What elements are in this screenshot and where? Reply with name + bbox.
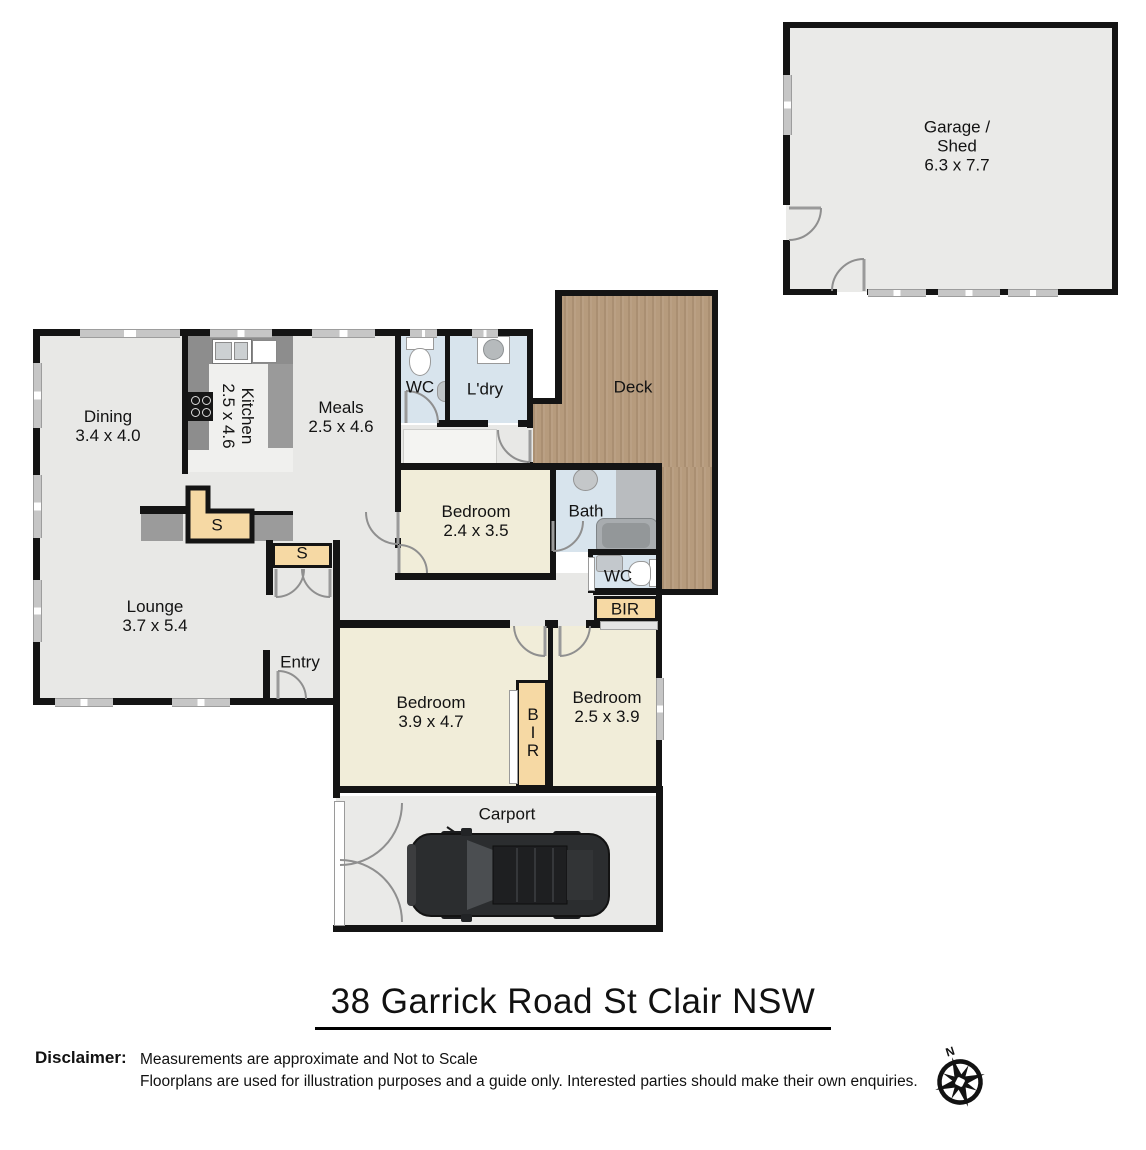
wall: [555, 290, 718, 296]
room-dims: 3.9 x 4.7: [397, 712, 466, 731]
room-label-meals: Meals 2.5 x 4.6: [308, 398, 373, 436]
room-name: Bath: [569, 502, 604, 521]
window: [172, 698, 230, 707]
room-label-laundry: L'dry: [467, 380, 503, 399]
room-name: Carport: [479, 805, 536, 824]
disclaimer-line2: Floorplans are used for illustration pur…: [140, 1073, 918, 1091]
floorplan-canvas: N Garage / Shed 6.3 x 7.7 Dining 3.4 x 4…: [0, 0, 1146, 1150]
room-label-garage: Garage / Shed 6.3 x 7.7: [924, 118, 990, 175]
wall: [395, 463, 662, 470]
room-label-entry: Entry: [280, 653, 320, 672]
wall: [712, 290, 718, 595]
window: [656, 678, 664, 740]
wall: [333, 925, 663, 932]
room-name: L'dry: [467, 380, 503, 399]
kitchen-sink-bowl: [215, 342, 232, 360]
stove-burner: [191, 396, 200, 405]
room-dims: 2.4 x 3.5: [442, 521, 511, 540]
wall: [783, 22, 1118, 28]
room-label-lounge: Lounge 3.7 x 5.4: [122, 597, 187, 635]
wall: [437, 420, 488, 427]
lounge-cabinet-right: [253, 511, 293, 541]
room-name: Lounge: [122, 597, 187, 616]
window: [55, 698, 113, 707]
room-name: S: [211, 516, 222, 535]
room-name: Bedroom: [442, 502, 511, 521]
laundry-tub-bowl: [483, 339, 504, 360]
room-label-kitchen: Kitchen 2.5 x 4.6: [219, 383, 257, 448]
kitchen-sink-bowl: [234, 342, 248, 360]
room-dims: 2.5 x 4.6: [308, 417, 373, 436]
bathtub-inner: [602, 523, 650, 548]
toilet-bowl-icon: [409, 348, 431, 376]
wall: [783, 22, 790, 75]
wc-door-leaf: [588, 557, 595, 591]
wall: [333, 620, 510, 628]
room-name: WC: [604, 567, 632, 586]
robe-slider-door: [509, 690, 518, 784]
window: [33, 475, 42, 538]
wall: [445, 336, 450, 425]
room-dims: 6.3 x 7.7: [924, 156, 990, 175]
compass-north-label: N: [944, 1046, 957, 1060]
room-name: Garage /: [924, 118, 990, 137]
disclaimer-label: Disclaimer:: [35, 1048, 127, 1068]
window: [1008, 289, 1058, 297]
wall: [593, 588, 662, 595]
room-dims: 2.5 x 3.9: [573, 707, 642, 726]
room-label-storage-a: S: [211, 516, 222, 535]
disclaimer-line1: Measurements are approximate and Not to …: [140, 1051, 478, 1069]
stove-burner: [202, 408, 211, 417]
room-name: Bedroom: [397, 693, 466, 712]
window: [33, 363, 42, 428]
wall: [555, 290, 562, 404]
wall: [182, 329, 188, 474]
window: [472, 329, 498, 338]
deck-floor-side: [662, 467, 716, 593]
window: [33, 580, 42, 642]
kitchen-dishwasher: [252, 340, 277, 363]
wall: [783, 289, 837, 295]
room-name: Meals: [308, 398, 373, 417]
wall: [545, 620, 558, 628]
room-label-bir-rear: BIR: [611, 600, 639, 619]
room-name: BIR: [526, 706, 541, 760]
room-name: Entry: [280, 653, 320, 672]
wall: [395, 467, 401, 512]
window: [312, 329, 375, 338]
wall: [140, 506, 188, 514]
wall: [527, 336, 533, 428]
window: [938, 289, 1000, 297]
wall: [333, 540, 340, 798]
room-label-wc-rear: WC: [604, 567, 632, 586]
wall: [783, 240, 790, 295]
room-name: Kitchen: [238, 383, 257, 448]
hall-landing: [403, 429, 497, 465]
room-label-bedroom-rear: Bedroom 2.5 x 3.9: [573, 688, 642, 726]
compass-icon: N: [924, 1046, 996, 1118]
wall: [266, 540, 273, 595]
meals-floor: [293, 336, 401, 620]
room-name: Bedroom: [573, 688, 642, 707]
stove-burner: [202, 396, 211, 405]
wall: [333, 786, 663, 793]
window: [210, 329, 272, 338]
window: [410, 329, 437, 338]
kitchen-counter-right: [268, 364, 293, 448]
window: [80, 329, 180, 338]
room-label-storage-b: S: [296, 544, 307, 563]
wall: [550, 467, 556, 573]
room-label-dining: Dining 3.4 x 4.0: [75, 407, 140, 445]
room-label-wc-top: WC: [406, 378, 434, 397]
stove-burner: [191, 408, 200, 417]
window: [868, 289, 926, 297]
room-name: Dining: [75, 407, 140, 426]
address-title: 38 Garrick Road St Clair NSW: [315, 982, 832, 1030]
shower-screen: [616, 468, 656, 521]
room-name: BIR: [611, 600, 639, 619]
room-name: Deck: [614, 378, 653, 397]
room-label-bath: Bath: [569, 502, 604, 521]
carport-door-leaf: [334, 801, 345, 926]
robe-slider-door: [600, 621, 658, 630]
room-dims: 3.4 x 4.0: [75, 426, 140, 445]
wall: [395, 573, 556, 580]
room-name: WC: [406, 378, 434, 397]
shower-rose-icon: [573, 468, 598, 491]
wall: [263, 650, 270, 705]
room-label-deck: Deck: [614, 378, 653, 397]
wall: [395, 538, 401, 548]
wall: [656, 589, 718, 595]
room-name: Shed: [924, 137, 990, 156]
wall: [1112, 22, 1118, 295]
room-label-carport: Carport: [479, 805, 536, 824]
window: [783, 75, 792, 135]
room-name: S: [296, 544, 307, 563]
room-label-bir-mid: BIR: [526, 706, 541, 760]
wall: [548, 628, 553, 790]
room-label-bedroom-mid: Bedroom 2.4 x 3.5: [442, 502, 511, 540]
page-title: 38 Garrick Road St Clair NSW: [0, 982, 1146, 1022]
wall: [783, 135, 790, 205]
wall: [656, 793, 663, 932]
wall: [395, 336, 401, 467]
wall: [588, 549, 662, 555]
wall: [586, 620, 600, 628]
room-dims: 2.5 x 4.6: [219, 383, 238, 448]
room-label-bedroom-main: Bedroom 3.9 x 4.7: [397, 693, 466, 731]
room-dims: 3.7 x 5.4: [122, 616, 187, 635]
